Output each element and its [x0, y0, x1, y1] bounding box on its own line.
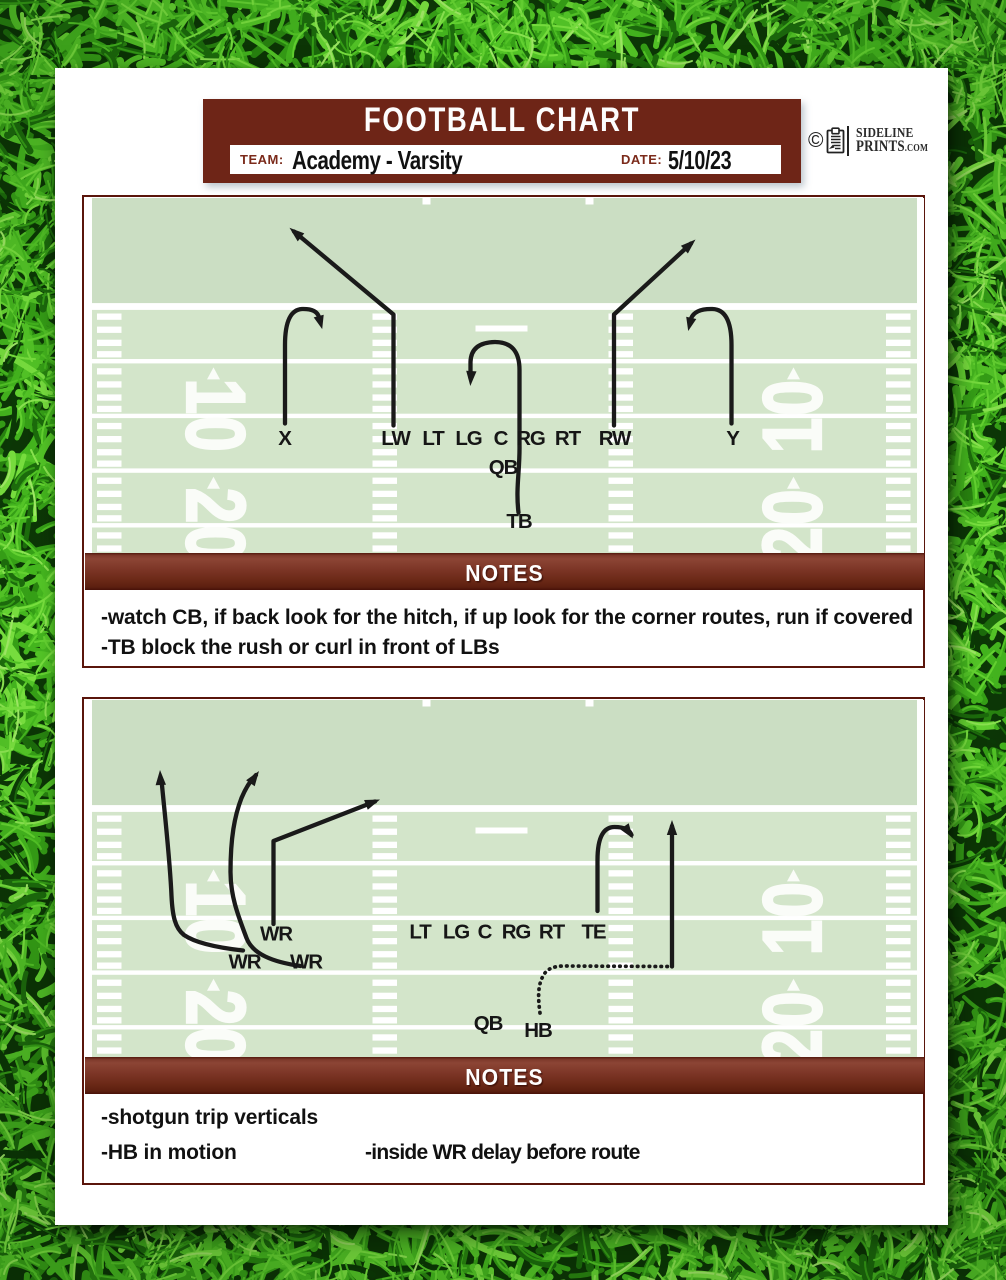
svg-text:RT: RT: [554, 427, 581, 450]
svg-text:C: C: [493, 427, 508, 450]
svg-text:20: 20: [744, 487, 838, 552]
svg-text:20: 20: [744, 990, 838, 1057]
svg-text:X: X: [278, 427, 292, 450]
svg-text:10: 10: [169, 378, 263, 453]
svg-text:20: 20: [169, 990, 263, 1057]
svg-text:WR: WR: [260, 923, 293, 946]
svg-text:HB: HB: [524, 1019, 552, 1042]
svg-text:WR: WR: [228, 951, 261, 974]
svg-text:LG: LG: [455, 427, 481, 450]
svg-text:10: 10: [744, 378, 838, 453]
svg-text:LT: LT: [409, 921, 432, 944]
svg-text:QB: QB: [473, 1012, 502, 1035]
svg-text:RG: RG: [516, 427, 545, 450]
svg-text:LG: LG: [442, 921, 468, 944]
svg-text:10: 10: [744, 880, 838, 955]
svg-text:LW: LW: [381, 427, 411, 450]
svg-text:WR: WR: [290, 951, 323, 974]
svg-text:QB: QB: [488, 456, 517, 479]
svg-text:TE: TE: [581, 921, 605, 944]
svg-text:20: 20: [169, 487, 263, 552]
svg-text:TB: TB: [506, 510, 531, 533]
svg-text:C: C: [477, 921, 492, 944]
svg-text:RT: RT: [538, 921, 565, 944]
svg-text:LT: LT: [422, 427, 445, 450]
svg-text:RW: RW: [598, 427, 631, 450]
svg-text:Y: Y: [726, 427, 740, 450]
svg-text:RG: RG: [501, 921, 530, 944]
